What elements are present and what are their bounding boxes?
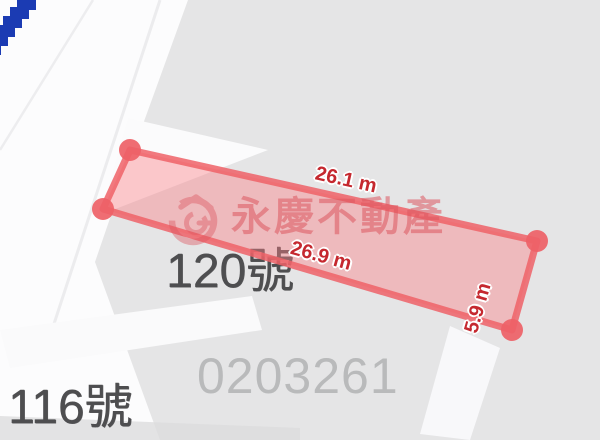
map-viewport[interactable]: 120號 116號 永慶不動產 0203261 26.1 m 26.9 m 5.…	[0, 0, 600, 440]
watermark-company-text: 永慶不動產	[231, 197, 446, 237]
watermark-ref-number: 0203261	[197, 351, 399, 401]
